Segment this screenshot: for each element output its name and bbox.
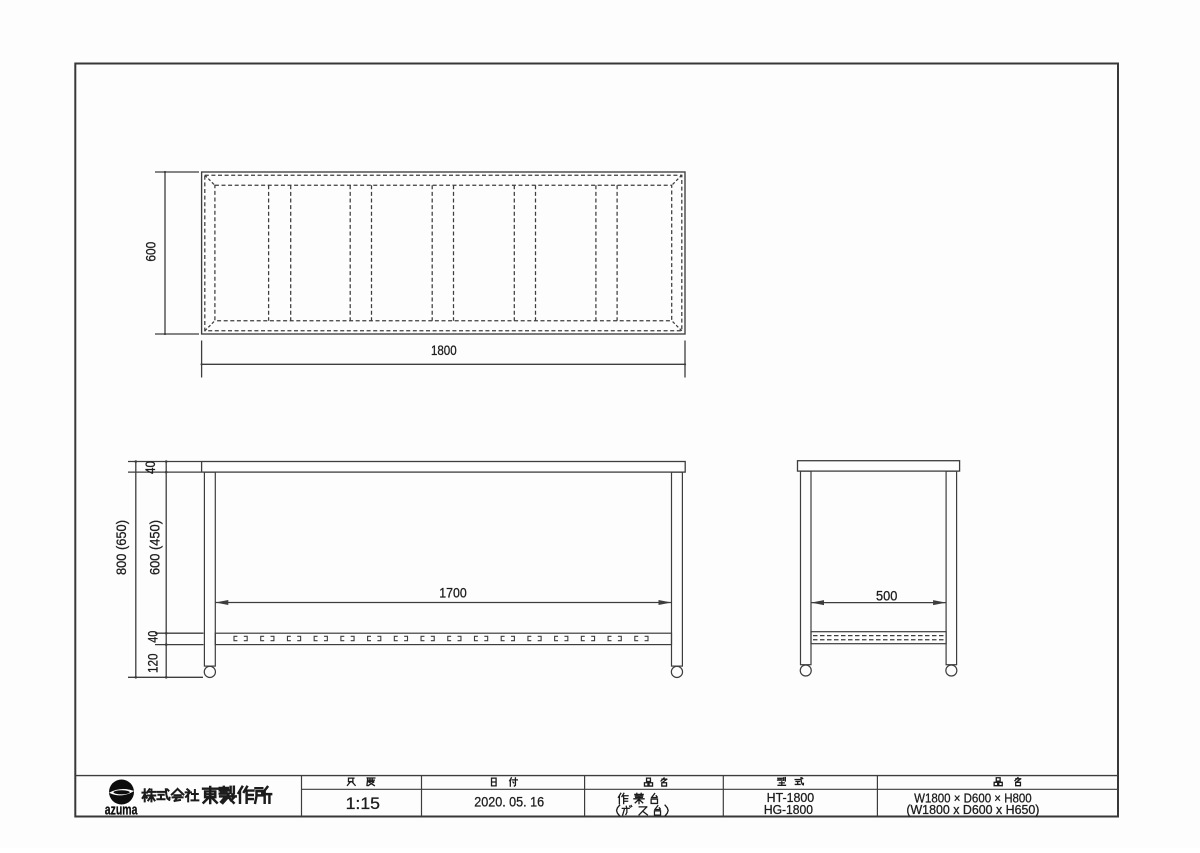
svg-text:40: 40 <box>143 461 158 474</box>
svg-text:(W1800 x D600 x H650): (W1800 x D600 x H650) <box>906 803 1039 817</box>
svg-text:1700: 1700 <box>439 586 466 601</box>
svg-text:1:15: 1:15 <box>346 795 380 813</box>
svg-text:120: 120 <box>145 653 160 673</box>
svg-text:2020. 05. 16: 2020. 05. 16 <box>474 794 544 810</box>
svg-text:600: 600 <box>144 242 159 262</box>
svg-text:1800: 1800 <box>431 343 457 358</box>
svg-text:azuma: azuma <box>105 801 138 818</box>
svg-text:500: 500 <box>876 589 897 604</box>
svg-text:HG-1800: HG-1800 <box>764 803 813 817</box>
svg-text:800 (650): 800 (650) <box>114 520 129 575</box>
svg-text:40: 40 <box>146 631 161 643</box>
svg-text:600 (450): 600 (450) <box>147 520 162 575</box>
